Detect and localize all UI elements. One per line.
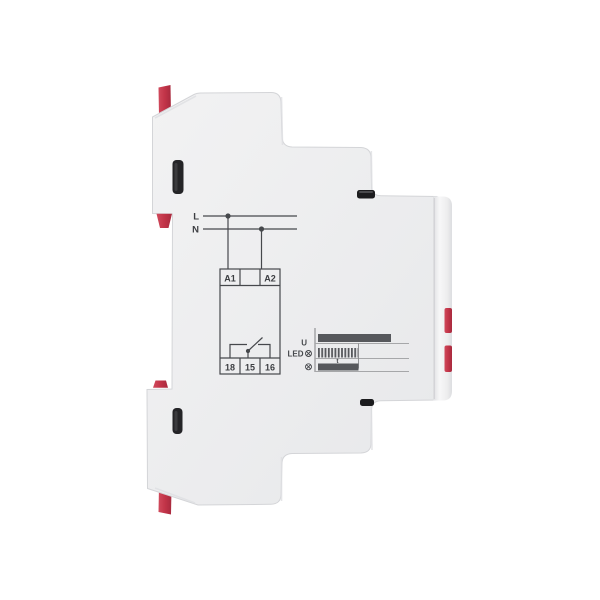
terminal-label-a1: A1 [224,274,236,284]
din-clip-middle-upper [157,214,173,228]
n-label: N [192,225,199,236]
vent-slot-upper-highlight [359,191,373,193]
mounting-slot-upper [173,160,184,194]
timing-label-led: LED [288,350,304,359]
vent-slot-lower [360,399,374,406]
u-bar [318,334,391,342]
product-image: L N A1 A2 18 15 16 U LED t [0,0,600,600]
front-clip-top [445,308,453,333]
terminal-label-15: 15 [245,363,255,373]
led-blink-bar [318,348,359,358]
front-clip-bottom [445,346,453,373]
device-body [147,93,437,506]
device-illustration: L N A1 A2 18 15 16 U LED t [0,0,600,600]
terminal-label-18: 18 [225,363,235,373]
terminal-label-16: 16 [265,363,275,373]
mounting-slot-lower-highlight [175,411,178,431]
terminal-label-a2: A2 [264,274,276,284]
din-clip-middle-lower [153,381,168,388]
mounting-slot-upper-highlight [175,163,178,191]
l-label: L [193,212,199,223]
timing-label-u: U [301,339,307,348]
